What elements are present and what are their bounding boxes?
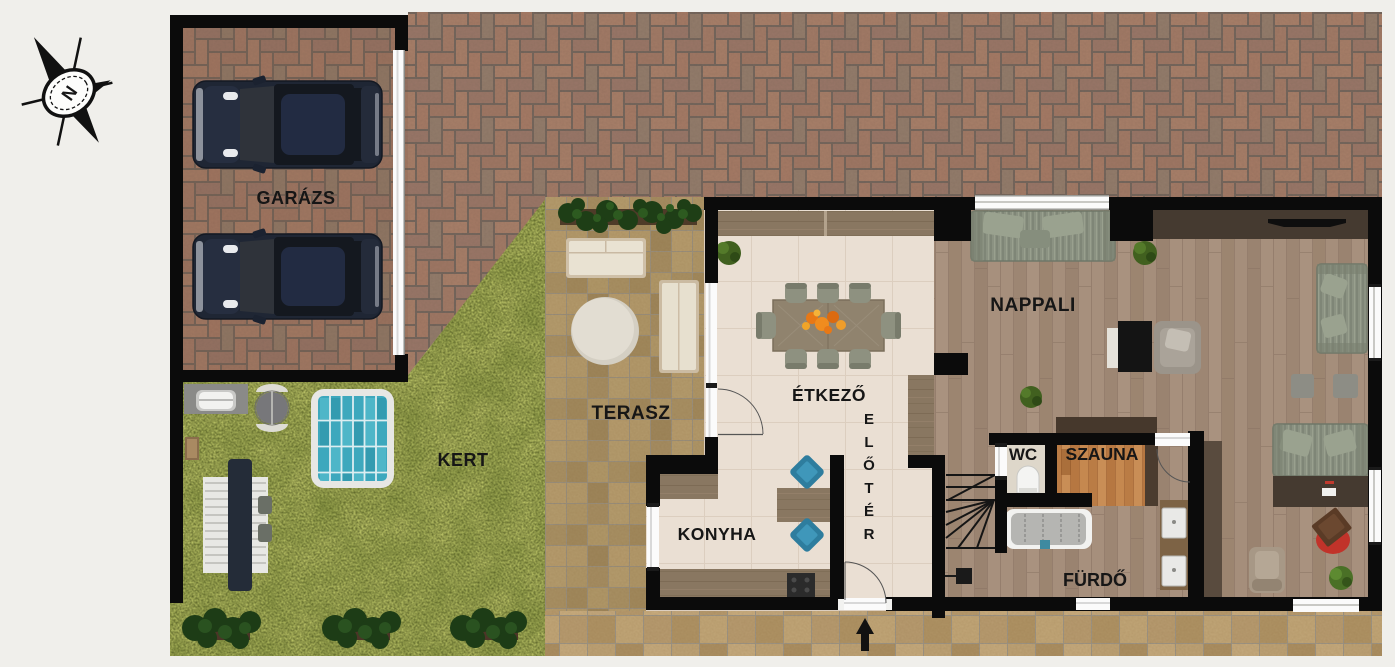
svg-text:GARÁZS: GARÁZS [257,187,336,208]
svg-text:L: L [864,434,873,451]
svg-text:R: R [864,526,875,543]
svg-text:KERT: KERT [438,450,489,470]
svg-text:Ő: Ő [863,456,875,474]
svg-text:FÜRDŐ: FÜRDŐ [1063,569,1127,590]
svg-text:É: É [864,503,874,520]
svg-text:E: E [864,411,874,428]
svg-text:T: T [864,480,873,497]
svg-text:TERASZ: TERASZ [592,403,671,424]
svg-text:ÉTKEZŐ: ÉTKEZŐ [792,384,866,405]
svg-text:NAPPALI: NAPPALI [990,295,1075,316]
svg-text:KONYHA: KONYHA [678,524,757,544]
svg-text:WC: WC [1009,445,1037,464]
svg-text:SZAUNA: SZAUNA [1066,444,1139,464]
